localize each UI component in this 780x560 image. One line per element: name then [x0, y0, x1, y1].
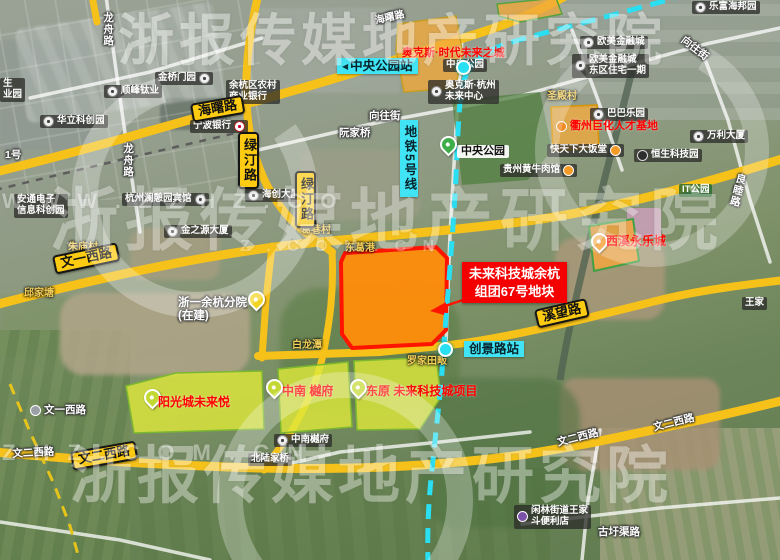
label-text: 西溪永乐城 — [606, 235, 666, 249]
road-wenyi-west — [0, 158, 780, 305]
dot-dark-icon — [637, 150, 648, 161]
poi-label: 安通电子信息科创园 — [14, 194, 68, 218]
label-text: 地铁5号线 — [402, 125, 416, 192]
poi-label: 宁波银行 — [190, 120, 248, 133]
terrain-patch — [560, 378, 720, 470]
label-text: 杭州澜憩园宾馆 — [125, 194, 192, 205]
watermark-layer: 浙报传媒地产研究院浙报传媒地产研究院浙报传媒地产研究院W W W . Z Z H… — [0, 0, 780, 560]
road-name-label: 向往街 — [369, 110, 401, 122]
road-name-label: 龙舟路 — [122, 143, 134, 178]
label-text: 文二西路 — [556, 427, 600, 449]
label-text: 向往街 — [679, 34, 711, 63]
watermark-rings — [0, 0, 780, 560]
label-text: 宁波银行 — [193, 121, 231, 132]
label-text: 邱家塘 — [24, 288, 54, 300]
village-label: 东葛港 — [345, 243, 375, 255]
terrain-patch — [600, 428, 780, 560]
map-pin-icon — [244, 287, 268, 311]
label-line: 业园 — [3, 90, 22, 101]
poi-label: 贵州黄牛肉馆 — [500, 164, 577, 177]
label-text: 海曙路 — [197, 98, 238, 119]
road-name-label: 1号 — [5, 149, 21, 161]
metro-purple-icon — [517, 511, 528, 522]
project-label: 衢州巨化人才基地 — [556, 120, 658, 133]
map-canvas: 浙报传媒地产研究院浙报传媒地产研究院浙报传媒地产研究院W W W . Z Z H… — [0, 0, 780, 560]
poi-label: 杭州澜憩园宾馆 — [122, 193, 209, 206]
label-text: 东原 未来科技城项目 — [366, 385, 477, 399]
village-label: 邱家塘 — [24, 288, 54, 300]
dot-gray-icon — [107, 86, 118, 97]
road-name-label: 文二西路 — [12, 446, 55, 460]
metro-station-icon — [456, 60, 471, 75]
road-name-label: 阮家桥 — [339, 127, 371, 139]
road-name-label: 良睦路 — [728, 172, 748, 208]
label-text: 华立科创园 — [57, 116, 105, 127]
label-text: 恒生科技园 — [651, 150, 699, 161]
dot-gray-icon — [431, 86, 442, 97]
label-text: 龙舟路 — [122, 143, 134, 178]
poi-label: 中南樾府 — [274, 434, 332, 447]
road-pill: 绿汀路 — [238, 132, 259, 189]
label-text: 溪望路 — [541, 302, 582, 325]
road-pill: 海曙路 — [190, 95, 245, 123]
label-text: 衢州巨化人才基地 — [570, 120, 658, 133]
label-text: 向往街 — [369, 110, 401, 122]
label-text: 巴巴乐园 — [607, 109, 645, 120]
label-text: 阳光城未来悦 — [158, 396, 230, 410]
label-text: 1号 — [5, 149, 21, 161]
poi-label: 王家 — [742, 297, 767, 310]
project-label: 中南 樾府 — [282, 385, 333, 399]
poi-label: 金桥门园 — [155, 72, 213, 85]
watermark-text: 浙报传媒地产研究院 — [50, 165, 725, 264]
station-label: 创景路站 — [464, 341, 524, 357]
road-name-label: 文一西路 — [30, 404, 86, 416]
smiley-icon — [610, 145, 621, 156]
label-text: 中南樾府 — [291, 435, 329, 446]
project-label: 西溪永乐城 — [606, 235, 666, 249]
label-text: 绿汀路 — [298, 177, 313, 222]
arrow-left-icon: ◀ — [342, 62, 348, 71]
dot-gray-icon — [583, 37, 594, 48]
label-text: 快天下大饭堂 — [550, 145, 607, 156]
label-text: 海曙路 — [374, 9, 406, 27]
label-line: 浙一余杭分院 — [178, 297, 247, 310]
dot-gray-icon — [693, 131, 704, 142]
label-text: 中央公园 — [461, 145, 505, 158]
label-text: 安通电子信息科创园 — [17, 195, 65, 217]
label-text: 圣殿村 — [547, 91, 577, 103]
station-label: ◀中央公园站 — [337, 58, 418, 74]
label-text: 文二西路 — [12, 446, 55, 460]
poi-label: 闲林街道王家斗便利店 — [514, 505, 591, 529]
label-text: 文一西路 — [44, 404, 86, 416]
callout-line: 未来科技城余杭 — [469, 265, 560, 283]
watermark-url: Z . C O M . C N — [240, 238, 440, 256]
poi-label: IT公园 — [679, 184, 712, 197]
poi-label: 华立科创园 — [40, 115, 108, 128]
label-text: 绿汀路 — [241, 138, 256, 183]
label-text: 贵州黄牛肉馆 — [503, 165, 560, 176]
road-pill: 绿汀路 — [295, 171, 316, 228]
map-overlay-svg — [0, 0, 780, 560]
label-text: 罗家田畈 — [407, 356, 447, 368]
canal — [560, 36, 640, 380]
label-text: 金之源大厦 — [181, 226, 229, 237]
label-text: 白龙潭 — [292, 340, 322, 352]
label-text: 龙舟路 — [102, 12, 114, 47]
label-text: IT公园 — [682, 185, 709, 196]
poi-label: 金之源大厦 — [164, 225, 232, 238]
label-text: 良睦路 — [728, 172, 748, 208]
label-text: 文二西路 — [77, 444, 131, 468]
label-text: 中央公园站 — [350, 59, 413, 73]
road-name-label: 文二西路 — [652, 412, 696, 434]
metro-station-icon — [438, 342, 453, 357]
label-text: 生业园 — [3, 79, 22, 101]
road-stub-topleft — [92, 0, 97, 22]
road-name-label: 向往街 — [679, 34, 711, 63]
poi-label: 欧美金融城东区住宅一期 — [572, 54, 649, 78]
road-minor-bottom-1 — [582, 430, 600, 560]
poi-label: 恒生科技园 — [634, 149, 702, 162]
dot-gray-icon — [248, 190, 259, 201]
label-text: 欧美金融城 — [597, 37, 645, 48]
poi-label: 生业园 — [0, 78, 25, 102]
dot-gray-icon — [195, 194, 206, 205]
village-label: 罗家田畈 — [407, 356, 447, 368]
poi-label: 顺峰钛业 — [104, 85, 162, 98]
village-label: 白龙潭 — [292, 340, 322, 352]
project-label: 东原 未来科技城项目 — [366, 385, 477, 399]
label-text: 闲林街道王家斗便利店 — [531, 506, 588, 528]
road-name-label: 中央公园 — [457, 145, 509, 158]
road-name-label: 浙一余杭分院(在建) — [178, 297, 247, 323]
smiley-icon — [563, 165, 574, 176]
label-text: 奥克斯·杭州未来中心 — [445, 81, 496, 103]
label-text: 乐富海邦园 — [709, 2, 757, 13]
label-text: 金桥门园 — [158, 73, 196, 84]
road-name-label: 文二西路 — [556, 427, 600, 449]
metro-line-label: 地铁5号线 — [400, 120, 418, 197]
label-text: 东葛港 — [345, 243, 375, 255]
label-line: 信息科创园 — [17, 206, 65, 217]
label-text: 浙一余杭分院(在建) — [178, 297, 247, 323]
parcel-top-small — [497, 0, 562, 22]
callout-line: 组团67号地块 — [469, 283, 560, 301]
dot-gray-icon — [695, 2, 706, 13]
dot-gray-icon — [199, 73, 210, 84]
label-text: 顺峰钛业 — [121, 86, 159, 97]
bank-red-icon — [234, 121, 245, 132]
metro-gray-icon — [30, 405, 41, 416]
label-text: 王家 — [745, 298, 764, 309]
label-line: 未来中心 — [445, 92, 496, 103]
label-text: 万利大厦 — [707, 131, 745, 142]
dot-orange-icon — [556, 121, 567, 132]
project-label: 奥克斯·时代未来之城 — [402, 47, 505, 60]
label-text: 文二西路 — [652, 412, 696, 434]
label-text: 奥克斯·时代未来之城 — [402, 47, 505, 60]
label-text: 创景路站 — [469, 342, 519, 356]
label-text: 阮家桥 — [339, 127, 371, 139]
parcel-highlight-67 — [341, 247, 447, 348]
minor-roads — [0, 0, 780, 560]
village-label: 圣殿村 — [547, 91, 577, 103]
poi-label: 乐富海邦园 — [692, 1, 760, 14]
poi-label: 万利大厦 — [690, 130, 748, 143]
dot-gray-icon — [593, 109, 604, 120]
dot-gray-icon — [43, 116, 54, 127]
poi-label: 北陆家桥 — [248, 453, 292, 466]
poi-label: 欧美金融城 — [580, 36, 648, 49]
road-name-label: 龙舟路 — [102, 12, 114, 47]
poi-label: 奥克斯·杭州未来中心 — [428, 80, 499, 104]
label-line: 斗便利店 — [531, 517, 588, 528]
railway-line — [0, 132, 240, 190]
dot-gray-icon — [575, 60, 586, 71]
watermark-ring — [183, 338, 507, 560]
terrain-patch — [130, 468, 550, 560]
label-line: (在建) — [178, 310, 247, 323]
road-name-label: 古圩渠路 — [598, 526, 640, 538]
dot-gray-icon — [277, 435, 288, 446]
road-minor-bottom-2 — [0, 522, 210, 560]
road-name-label: 海曙路 — [374, 9, 406, 27]
label-text: 北陆家桥 — [251, 454, 289, 465]
poi-label: 快天下大饭堂 — [547, 144, 624, 157]
road-luting-north — [246, 0, 332, 252]
project-label: 阳光城未来悦 — [158, 396, 230, 410]
dot-gray-icon — [167, 226, 178, 237]
road-liangmu — [700, 46, 770, 262]
label-text: 古圩渠路 — [598, 526, 640, 538]
label-text: 欧美金融城东区住宅一期 — [589, 55, 646, 77]
label-text: 中南 樾府 — [282, 385, 333, 399]
label-line: 东区住宅一期 — [589, 66, 646, 77]
callout-box: 未来科技城余杭组团67号地块 — [462, 262, 567, 303]
road-pill: 文二西路 — [70, 441, 138, 471]
